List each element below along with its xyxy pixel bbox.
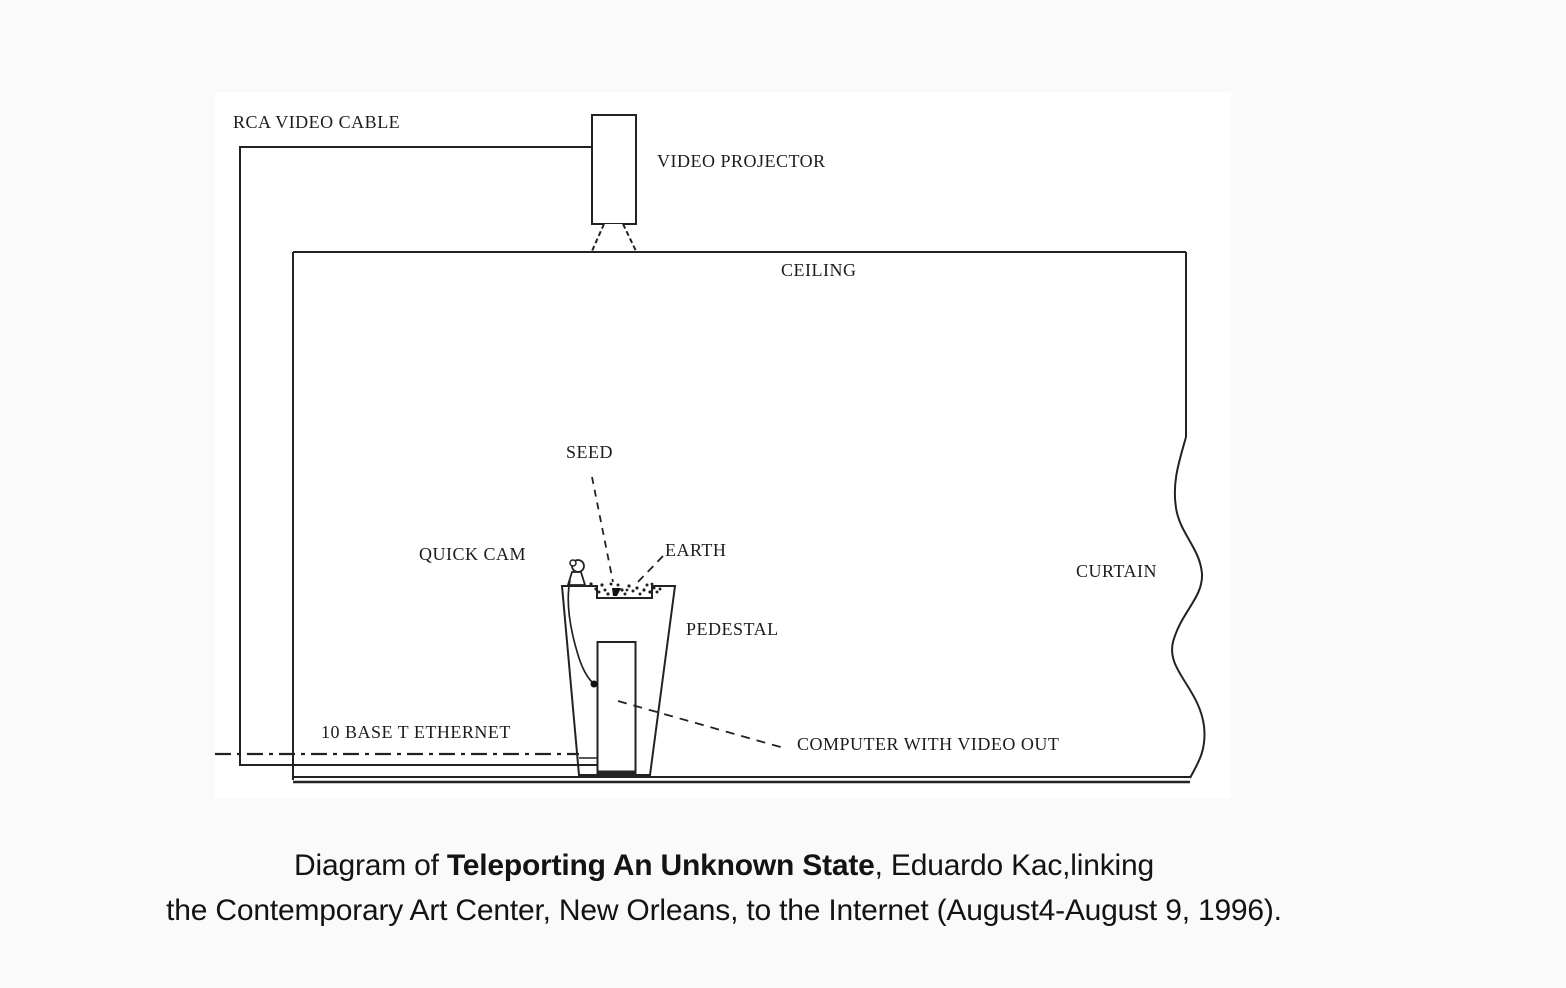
seed-label: SEED — [566, 442, 613, 462]
caption: Diagram of Teleporting An Unknown State,… — [74, 843, 1374, 933]
ethernet-label: 10 BASE T ETHERNET — [321, 722, 511, 742]
curtain-wavy-line — [1172, 437, 1204, 778]
projector-lens-cone — [592, 224, 636, 252]
pedestal-label: PEDESTAL — [686, 619, 779, 639]
earth-dots — [589, 582, 661, 595]
ceiling-label: CEILING — [781, 260, 856, 280]
video-projector-label: VIDEO PROJECTOR — [657, 151, 826, 171]
quickcam-base — [568, 572, 585, 585]
video-projector-box — [592, 115, 636, 224]
page: RCA VIDEO CABLE VIDEO PROJECTOR CEILING … — [0, 0, 1566, 988]
caption-suffix: , Eduardo Kac,linking — [875, 849, 1154, 882]
caption-artwork-title: Teleporting An Unknown State — [447, 849, 875, 882]
rca-video-cable-label: RCA VIDEO CABLE — [233, 112, 400, 132]
earth-label: EARTH — [665, 540, 726, 560]
cable-plug-dot — [591, 681, 598, 688]
computer-leader-line — [618, 701, 784, 748]
seed-leader-line — [592, 477, 613, 582]
caption-line-1: Diagram of Teleporting An Unknown State,… — [74, 843, 1374, 888]
quickcam-lens-icon — [570, 560, 576, 566]
quickcam-cable-line — [568, 580, 592, 682]
curtain-label: CURTAIN — [1076, 561, 1157, 581]
caption-prefix: Diagram of — [294, 849, 447, 882]
diagram-drawing — [0, 0, 1566, 988]
quick-cam-label: QUICK CAM — [419, 544, 526, 564]
caption-line-2: the Contemporary Art Center, New Orleans… — [74, 888, 1374, 933]
computer-label: COMPUTER WITH VIDEO OUT — [797, 734, 1059, 754]
earth-leader-line — [634, 556, 663, 586]
computer-box — [598, 642, 636, 773]
seed-marker — [612, 588, 621, 596]
